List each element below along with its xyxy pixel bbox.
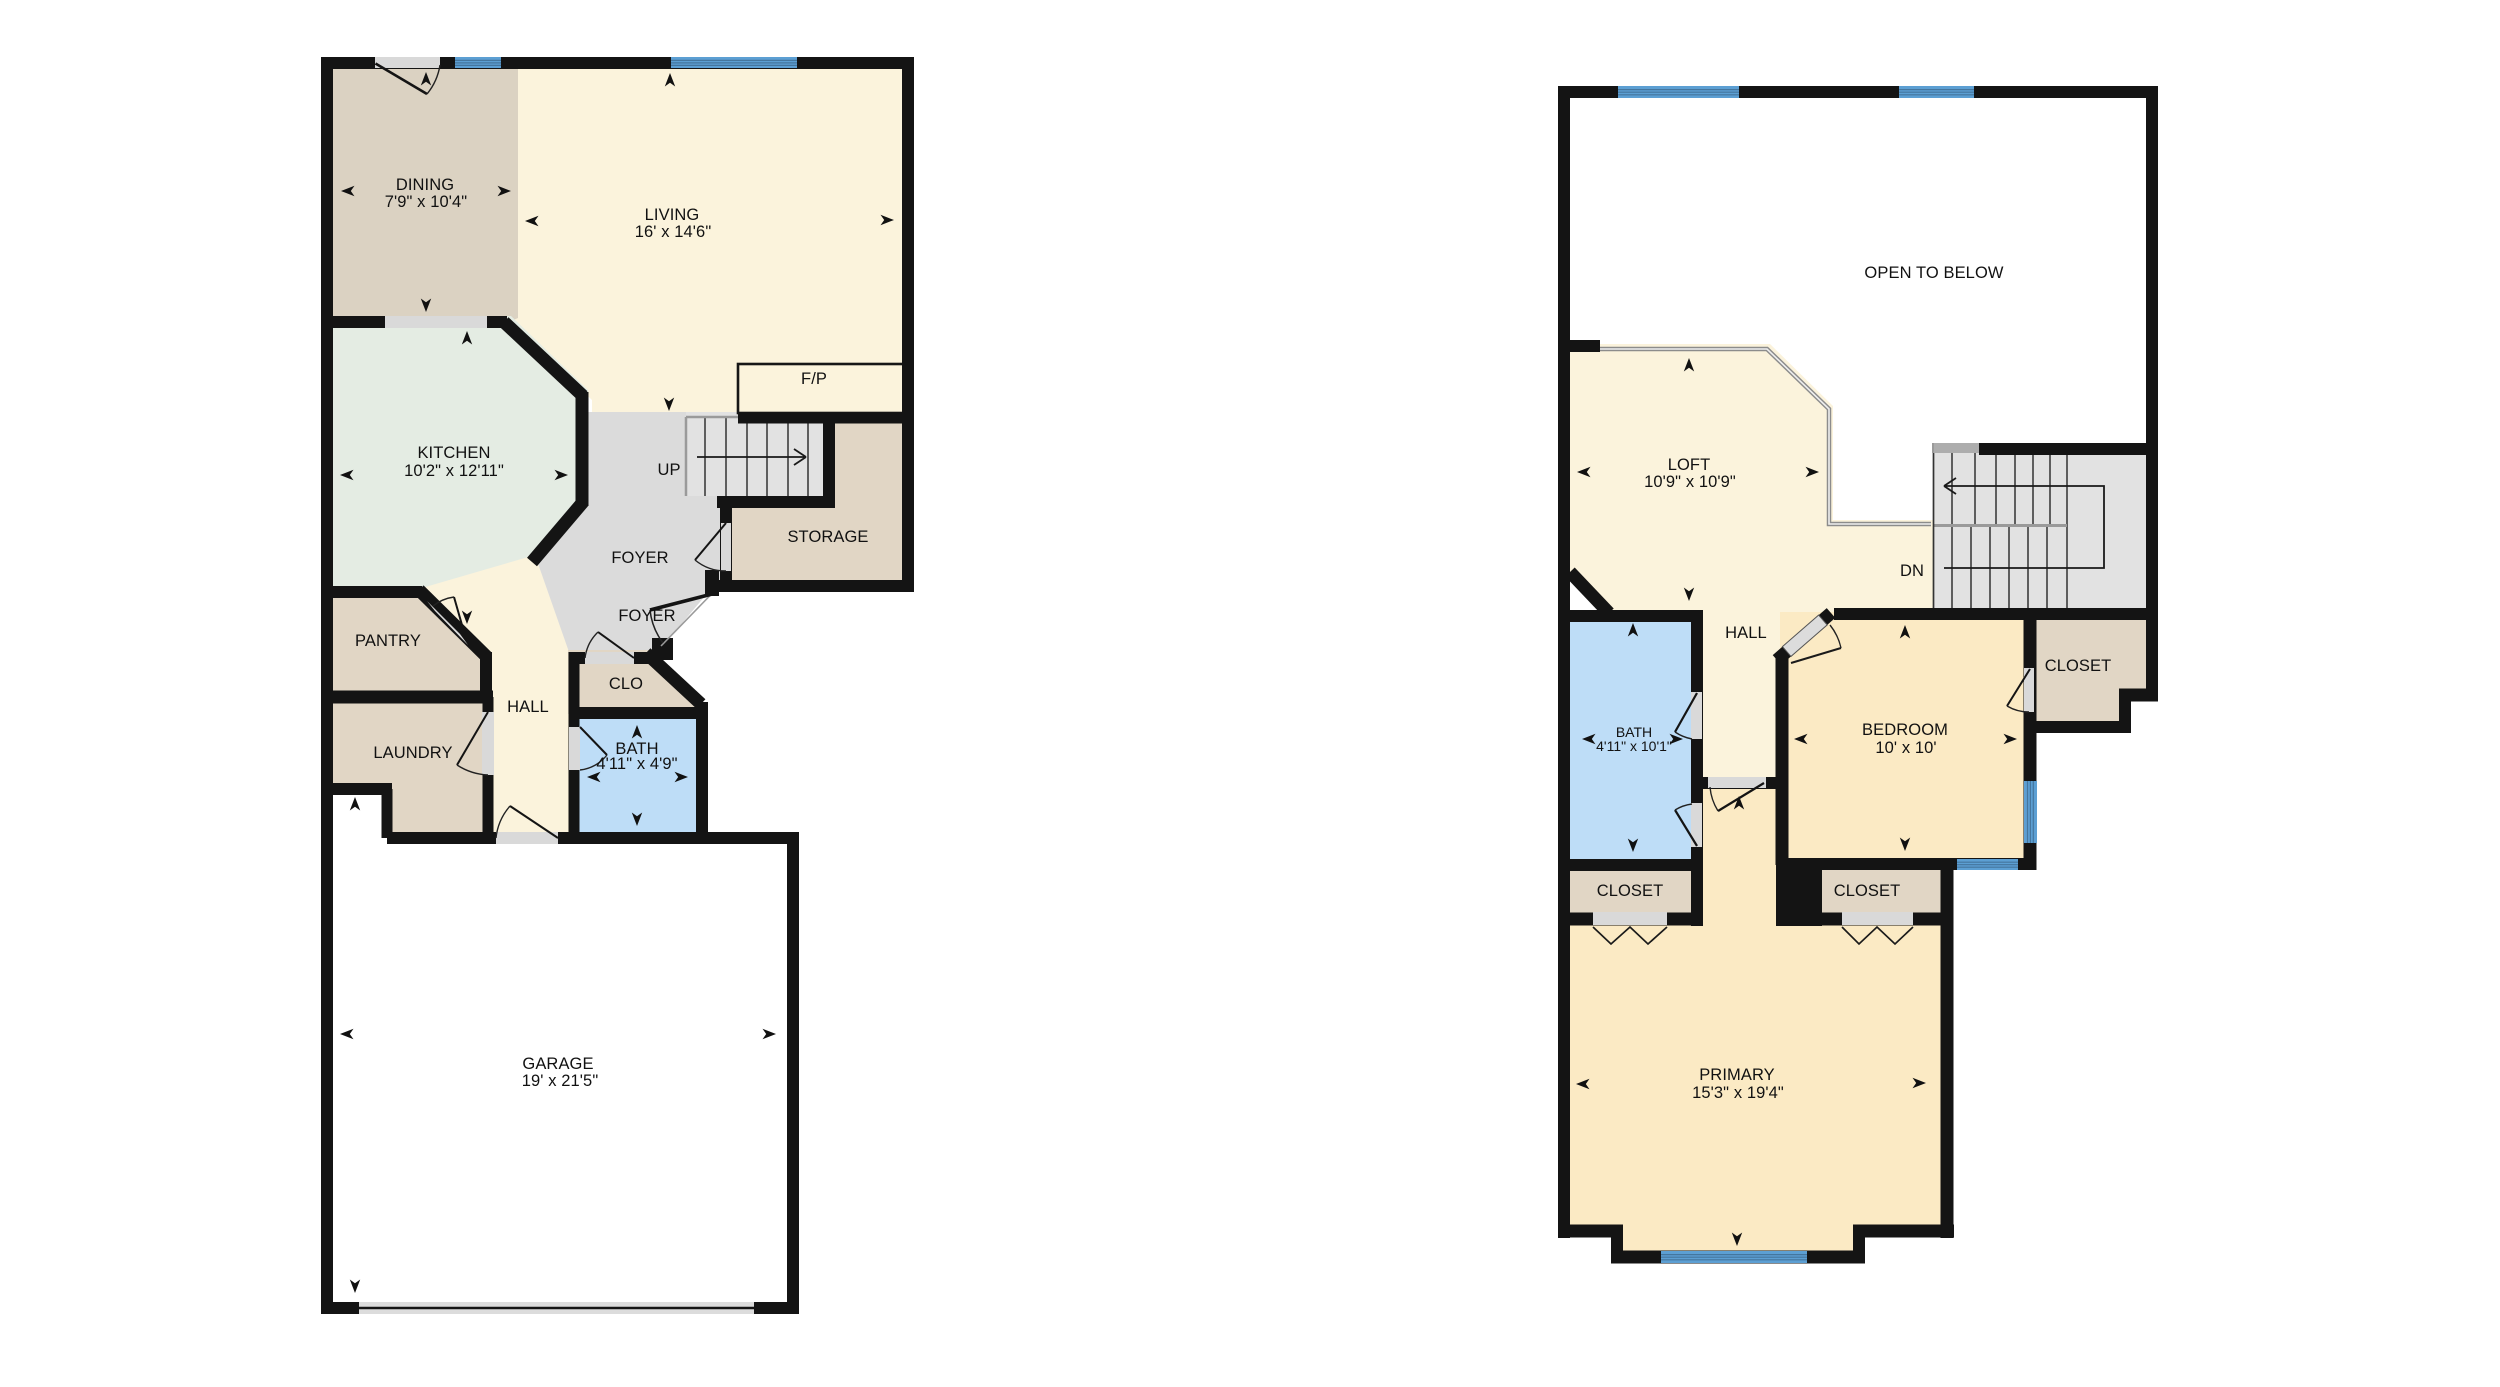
svg-text:CLOSET: CLOSET	[1834, 882, 1901, 900]
svg-text:DN: DN	[1900, 562, 1924, 580]
svg-text:BEDROOM: BEDROOM	[1862, 721, 1948, 739]
svg-text:FOYER: FOYER	[618, 607, 675, 625]
svg-text:GARAGE: GARAGE	[522, 1055, 593, 1073]
svg-text:4'11" x 4'9": 4'11" x 4'9"	[596, 755, 677, 773]
svg-text:OPEN TO BELOW: OPEN TO BELOW	[1864, 264, 2003, 282]
svg-text:19' x 21'5": 19' x 21'5"	[522, 1072, 599, 1090]
svg-text:15'3" x 19'4": 15'3" x 19'4"	[1692, 1084, 1784, 1102]
svg-text:7'9" x 10'4": 7'9" x 10'4"	[385, 193, 468, 211]
svg-text:DINING: DINING	[396, 176, 454, 194]
svg-text:FOYER: FOYER	[611, 549, 668, 567]
svg-text:16' x 14'6": 16' x 14'6"	[635, 223, 712, 241]
svg-text:LOFT: LOFT	[1668, 456, 1711, 474]
svg-text:10' x 10': 10' x 10'	[1875, 739, 1936, 757]
svg-text:F/P: F/P	[801, 370, 827, 388]
svg-text:HALL: HALL	[1725, 624, 1767, 642]
svg-text:UP: UP	[657, 461, 680, 479]
svg-text:LAUNDRY: LAUNDRY	[373, 744, 452, 762]
svg-text:4'11" x 10'1": 4'11" x 10'1"	[1596, 738, 1672, 754]
svg-text:CLOSET: CLOSET	[1597, 882, 1664, 900]
svg-text:CLOSET: CLOSET	[2045, 657, 2112, 675]
svg-text:STORAGE: STORAGE	[787, 528, 868, 546]
svg-text:CLO: CLO	[609, 675, 643, 693]
svg-text:PRIMARY: PRIMARY	[1699, 1066, 1775, 1084]
svg-text:10'2" x 12'11": 10'2" x 12'11"	[404, 462, 504, 480]
svg-text:KITCHEN: KITCHEN	[417, 444, 490, 462]
svg-text:HALL: HALL	[507, 698, 549, 716]
svg-text:10'9" x 10'9": 10'9" x 10'9"	[1644, 473, 1736, 491]
svg-text:PANTRY: PANTRY	[355, 632, 421, 650]
svg-text:LIVING: LIVING	[645, 206, 700, 224]
